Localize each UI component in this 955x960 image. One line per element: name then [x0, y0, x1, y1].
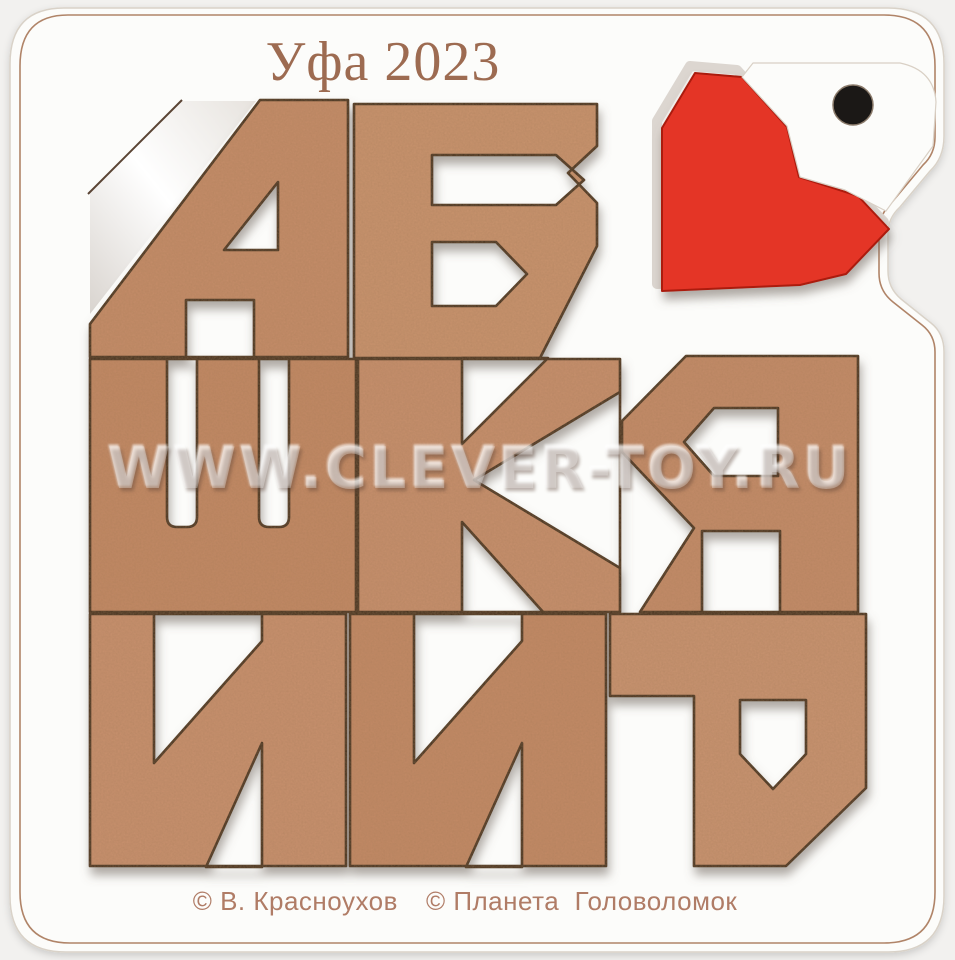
piece-sh-letter	[90, 358, 356, 612]
credits-line: © В. Красноухов © Планета Головоломок	[193, 886, 738, 917]
piece-b-letter	[354, 104, 597, 358]
credit-publisher: © Планета Головоломок	[426, 886, 737, 917]
hang-hole	[833, 85, 873, 125]
credit-designer: © В. Красноухов	[193, 886, 398, 917]
product-photo: Уфа 2023 WWW.CLEVER-TOY.RU © В. Красноух…	[0, 0, 955, 960]
puzzle-scene	[0, 0, 955, 960]
edition-label: Уфа 2023	[266, 30, 501, 94]
